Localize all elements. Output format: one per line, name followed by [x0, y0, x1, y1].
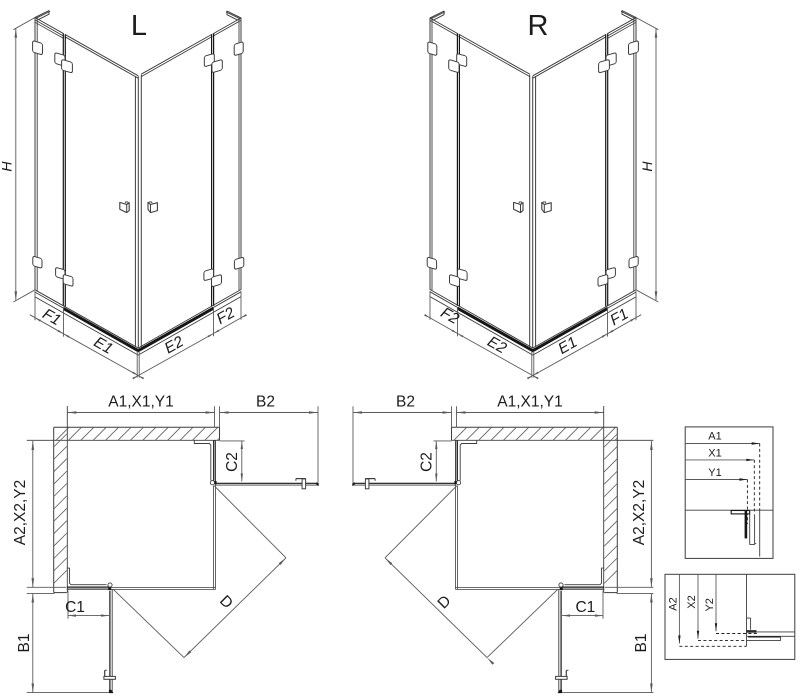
svg-text:X2: X2: [686, 595, 698, 608]
svg-text:C2: C2: [419, 452, 436, 472]
svg-text:A2,X2,Y2: A2,X2,Y2: [631, 480, 648, 546]
svg-text:Y2: Y2: [704, 598, 716, 611]
svg-text:B2: B2: [256, 394, 275, 411]
svg-text:C1: C1: [65, 599, 85, 616]
svg-text:H: H: [0, 161, 15, 172]
svg-text:B2: B2: [396, 394, 415, 411]
svg-text:L: L: [131, 10, 147, 42]
svg-text:A1: A1: [708, 431, 721, 443]
svg-text:A1,X1,Y1: A1,X1,Y1: [108, 394, 174, 411]
svg-text:R: R: [528, 10, 549, 42]
svg-text:Y1: Y1: [708, 467, 721, 479]
svg-text:C2: C2: [224, 452, 241, 472]
svg-text:C1: C1: [575, 599, 595, 616]
svg-text:A1,X1,Y1: A1,X1,Y1: [497, 394, 563, 411]
svg-text:B1: B1: [16, 634, 33, 653]
svg-text:A2: A2: [667, 597, 679, 610]
svg-text:B1: B1: [633, 634, 650, 653]
svg-text:X1: X1: [708, 447, 721, 459]
svg-text:A2,X2,Y2: A2,X2,Y2: [12, 480, 29, 546]
svg-text:H: H: [639, 161, 655, 172]
